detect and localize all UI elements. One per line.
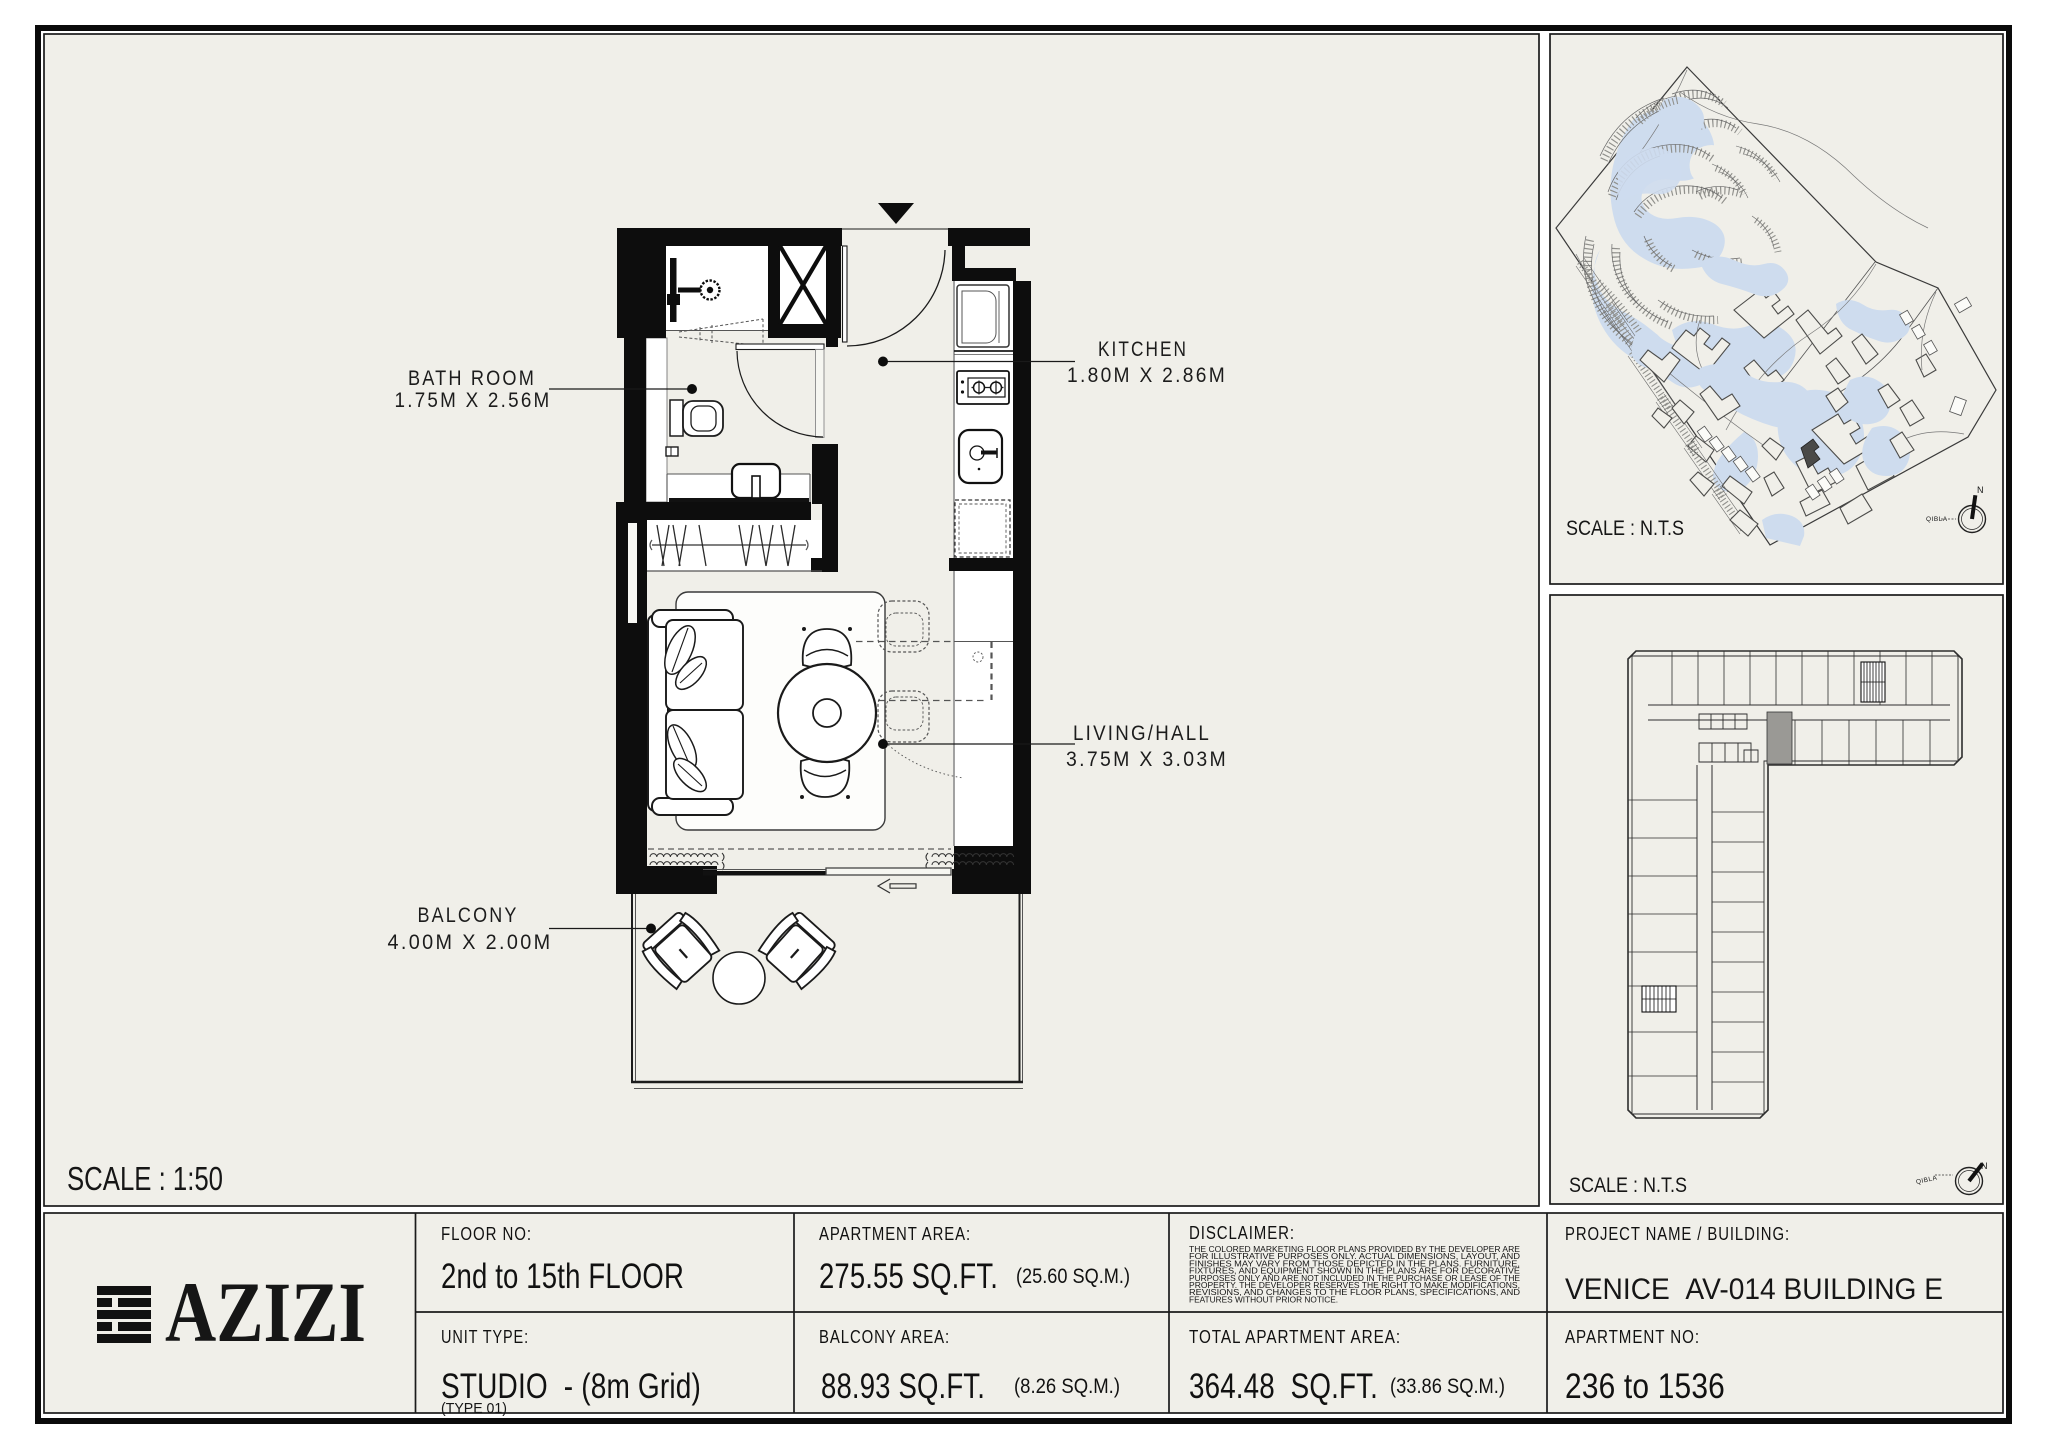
svg-text:SCALE : 1:50: SCALE : 1:50: [67, 1160, 223, 1197]
svg-text:88.93 SQ.FT.: 88.93 SQ.FT.: [821, 1367, 985, 1406]
svg-text:1.80M X 2.86M: 1.80M X 2.86M: [1067, 364, 1227, 387]
svg-text:(33.86 SQ.M.): (33.86 SQ.M.): [1390, 1375, 1505, 1398]
svg-text:APARTMENT NO:: APARTMENT NO:: [1565, 1327, 1700, 1347]
svg-text:4.00M X 2.00M: 4.00M X 2.00M: [388, 931, 553, 954]
svg-text:(8.26 SQ.M.): (8.26 SQ.M.): [1014, 1375, 1120, 1398]
svg-text:TOTAL APARTMENT AREA:: TOTAL APARTMENT AREA:: [1189, 1327, 1401, 1347]
svg-text:2nd to 15th FLOOR: 2nd to 15th FLOOR: [441, 1257, 684, 1296]
svg-text:AZIZI: AZIZI: [165, 1264, 366, 1360]
svg-text:SCALE : N.T.S: SCALE : N.T.S: [1566, 517, 1684, 540]
svg-text:UNIT TYPE:: UNIT TYPE:: [441, 1327, 529, 1347]
svg-text:VENICE AV-014 BUILDING E: VENICE AV-014 BUILDING E: [1565, 1273, 1943, 1306]
svg-text:(25.60 SQ.M.): (25.60 SQ.M.): [1016, 1265, 1130, 1288]
svg-text:364.48 SQ.FT.: 364.48 SQ.FT.: [1189, 1367, 1378, 1406]
svg-text:1.75M X 2.56M: 1.75M X 2.56M: [395, 389, 552, 412]
svg-text:PROJECT NAME / BUILDING:: PROJECT NAME / BUILDING:: [1565, 1224, 1790, 1244]
svg-text:FEATURES WITHOUT PRIOR NOTICE.: FEATURES WITHOUT PRIOR NOTICE.: [1189, 1294, 1338, 1304]
svg-text:BATH ROOM: BATH ROOM: [408, 367, 536, 390]
svg-text:275.55 SQ.FT.: 275.55 SQ.FT.: [819, 1257, 998, 1296]
svg-text:N: N: [1977, 485, 1984, 495]
svg-text:SCALE : N.T.S: SCALE : N.T.S: [1569, 1174, 1687, 1197]
svg-text:DISCLAIMER:: DISCLAIMER:: [1189, 1223, 1295, 1243]
svg-text:3.75M X 3.03M: 3.75M X 3.03M: [1066, 748, 1228, 771]
svg-text:KITCHEN: KITCHEN: [1098, 338, 1188, 361]
svg-text:BALCONY: BALCONY: [418, 904, 519, 927]
svg-text:FLOOR NO:: FLOOR NO:: [441, 1224, 532, 1244]
svg-text:BALCONY AREA:: BALCONY AREA:: [819, 1327, 950, 1347]
svg-text:N: N: [1981, 1161, 1988, 1171]
svg-text:236 to 1536: 236 to 1536: [1565, 1367, 1725, 1406]
svg-text:(TYPE 01): (TYPE 01): [441, 1400, 507, 1417]
svg-text:LIVING/HALL: LIVING/HALL: [1073, 722, 1211, 745]
svg-text:QIBLA: QIBLA: [1926, 516, 1948, 523]
svg-text:APARTMENT AREA:: APARTMENT AREA:: [819, 1224, 971, 1244]
